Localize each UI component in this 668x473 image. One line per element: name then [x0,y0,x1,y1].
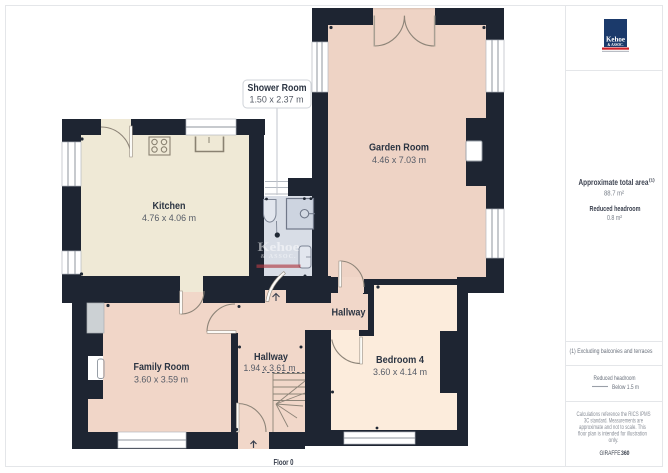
svg-text:3C standard. Measurements are: 3C standard. Measurements are [584,419,643,425]
svg-text:Reduced headroom: Reduced headroom [594,375,636,382]
svg-text:Calculations reference the RIC: Calculations reference the RICS IPMS [577,412,651,418]
svg-text:1.50 x 2.37 m: 1.50 x 2.37 m [250,95,304,106]
svg-text:& ASSOC.: & ASSOC. [261,254,297,260]
svg-text:Kehoe: Kehoe [258,240,301,254]
svg-text:GIRAFFE: GIRAFFE [600,450,621,457]
svg-text:4.76 x 4.06 m: 4.76 x 4.06 m [142,213,196,224]
svg-text:floor plan is intended for ill: floor plan is intended for illustration [578,432,647,438]
svg-text:Approximate total area: Approximate total area [579,177,649,187]
svg-text:Shower Room: Shower Room [248,83,307,94]
svg-text:Hallway: Hallway [332,307,366,319]
svg-text:3.60 x 4.14 m: 3.60 x 4.14 m [373,367,427,378]
svg-text:Floor 0: Floor 0 [274,458,294,467]
svg-text:(1): (1) [649,178,655,183]
svg-text:3.60 x 3.59 m: 3.60 x 3.59 m [134,375,188,386]
svg-text:88.7 m²: 88.7 m² [604,189,624,198]
svg-text:Bedroom 4: Bedroom 4 [376,354,424,366]
svg-text:0.8 m²: 0.8 m² [607,213,622,222]
svg-text:Kitchen: Kitchen [153,200,186,212]
svg-text:only.: only. [609,438,619,444]
svg-text:approximate and not to scale.: approximate and not to scale. This [579,425,646,431]
svg-text:Below 1.5 m: Below 1.5 m [612,384,639,391]
svg-text:(1) Excluding balconies and te: (1) Excluding balconies and terraces [570,348,653,355]
svg-text:4.46 x 7.03 m: 4.46 x 7.03 m [372,155,426,166]
svg-text:Garden Room: Garden Room [369,142,429,154]
svg-text:Family Room: Family Room [134,361,190,373]
svg-text:Reduced headroom: Reduced headroom [590,204,641,213]
svg-text:Hallway: Hallway [254,351,288,363]
svg-text:360: 360 [621,450,630,457]
svg-text:& ASSOC.: & ASSOC. [608,43,624,47]
svg-text:1.94 x 3.61 m: 1.94 x 3.61 m [244,363,296,374]
